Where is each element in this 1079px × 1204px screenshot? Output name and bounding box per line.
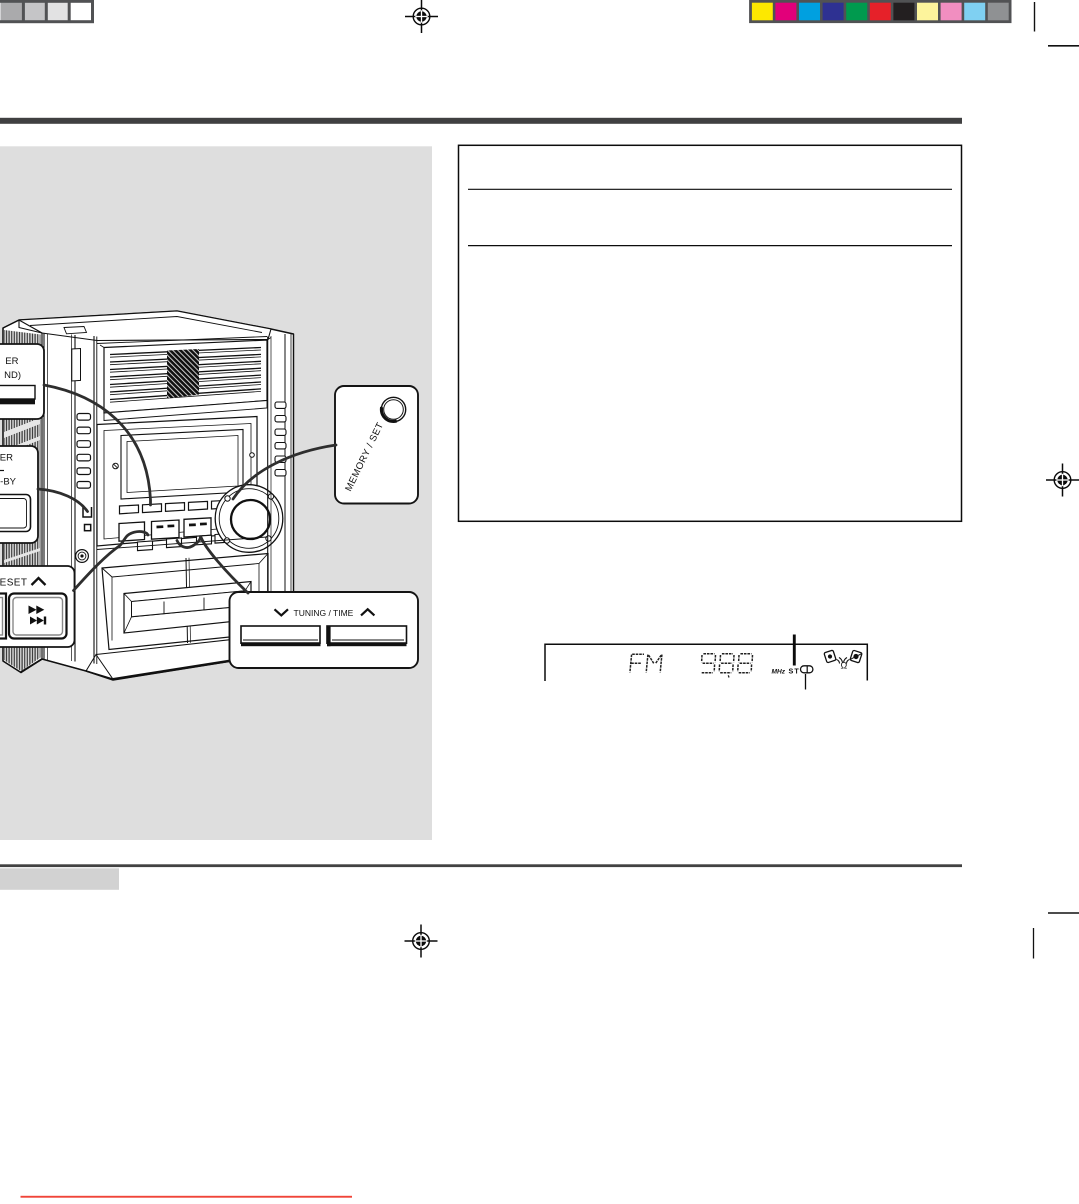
svg-text:ND): ND) [4,370,21,381]
svg-text:ER: ER [0,453,13,464]
svg-text:-BY: -BY [0,477,17,488]
svg-text:MHz: MHz [772,668,786,675]
svg-text:ST: ST [789,666,800,675]
svg-text:ER: ER [5,356,18,367]
svg-text:RESET: RESET [0,578,27,589]
svg-text:TUNING / TIME: TUNING / TIME [294,608,354,618]
